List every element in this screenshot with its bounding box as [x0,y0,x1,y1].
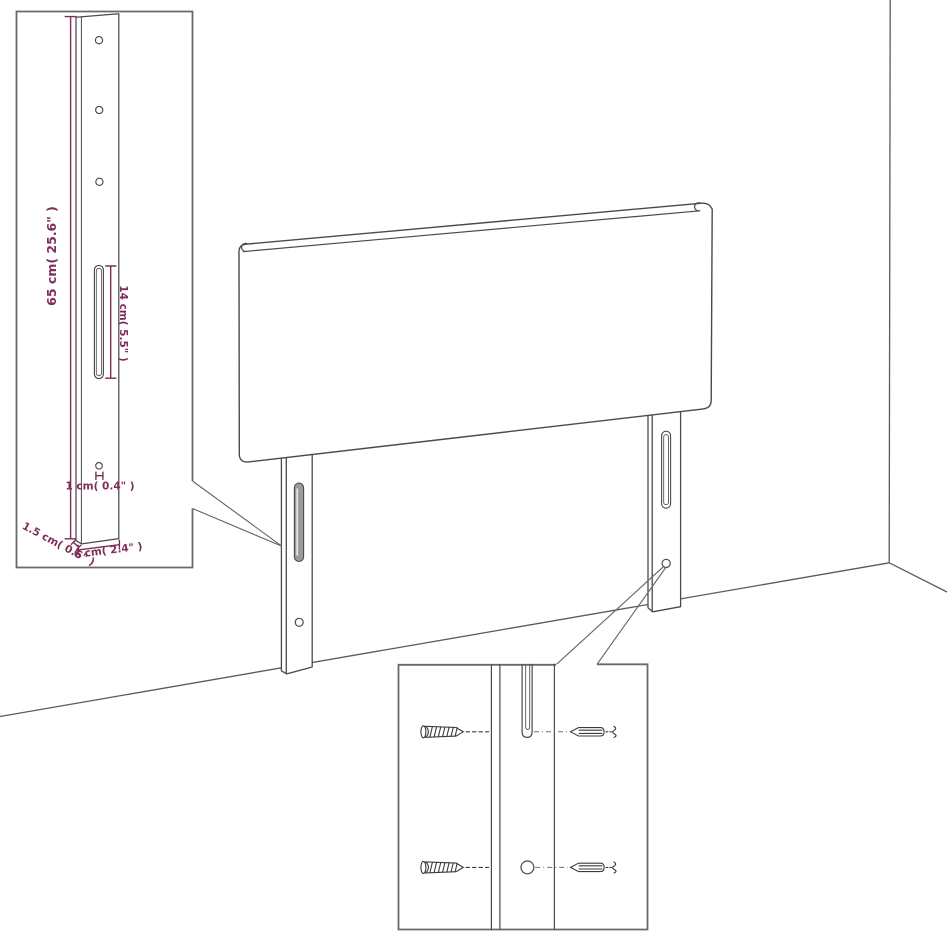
assembly-diagram-page: 65 cm( 25.6" ) 14 cm( 5.5" ) 1 cm( 0.4" … [0,0,947,947]
left-leg [281,453,312,674]
detail-slot [94,265,103,378]
left-leg-bolt-hole [295,618,303,626]
detail-screw-hole-2 [96,106,103,113]
dim-slot-label: 14 cm( 5.5" ) [117,285,129,361]
detail-screw-hole-3 [96,178,103,185]
right-leg-bolt-hole [662,559,670,567]
headboard-assembly-diagram: 65 cm( 25.6" ) 14 cm( 5.5" ) 1 cm( 0.4" … [0,0,947,947]
dim-hole-label: 1 cm( 0.4" ) [65,481,134,493]
right-leg-slot [662,431,671,508]
detail-screw-hole-1 [95,37,102,44]
hardware-inset-panel [399,664,648,929]
inset-bolt-hole [521,861,534,874]
right-leg [648,411,681,612]
dim-height-label: 65 cm( 25.6" ) [44,206,59,306]
leg-detail-inset: 65 cm( 25.6" ) 14 cm( 5.5" ) 1 cm( 0.4" … [17,12,193,569]
hardware-detail-inset [399,664,648,929]
detail-bolt-hole [96,463,103,470]
left-leg-slot [294,483,303,562]
